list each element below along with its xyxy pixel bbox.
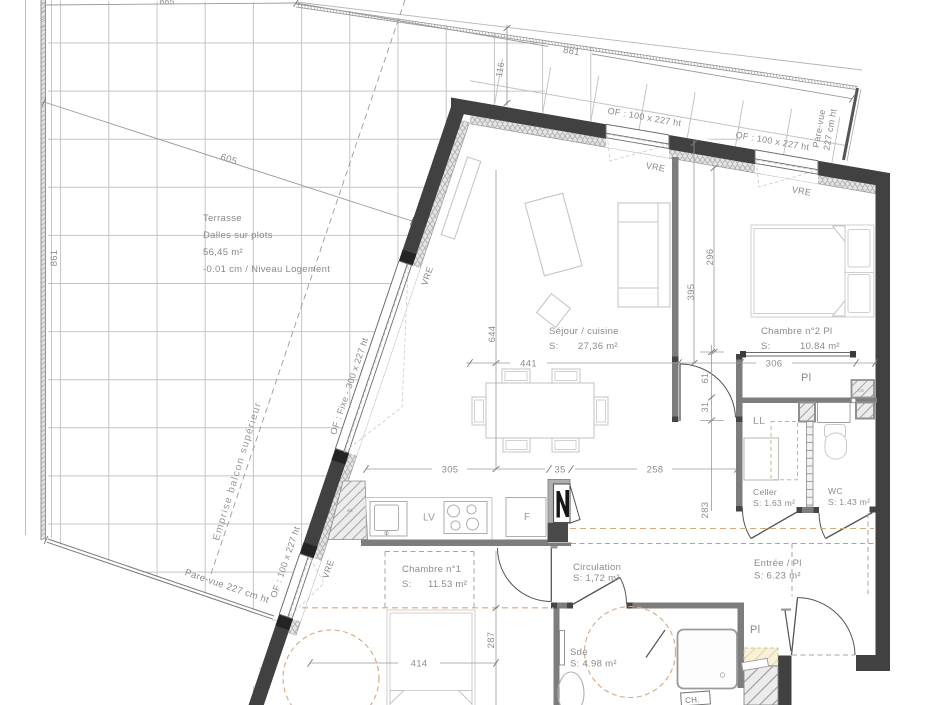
svg-text:S:: S: (549, 341, 559, 352)
svg-text:861: 861 (49, 250, 60, 267)
svg-text:-0.01 cm / Niveau Logement: -0.01 cm / Niveau Logement (203, 264, 330, 275)
svg-text:Circulation: Circulation (573, 562, 621, 573)
svg-text:414: 414 (411, 659, 428, 670)
svg-text:Chambre n°1: Chambre n°1 (402, 564, 461, 575)
svg-text:S: 1,72 m²: S: 1,72 m² (573, 573, 620, 584)
svg-text:296: 296 (705, 249, 716, 266)
svg-text:as: as (347, 508, 353, 514)
svg-text:Chambre n°2 Pl: Chambre n°2 Pl (761, 326, 832, 337)
svg-text:WC: WC (828, 486, 843, 496)
svg-text:Dalles sur plots: Dalles sur plots (203, 230, 273, 241)
svg-text:CH.: CH. (685, 695, 700, 705)
svg-text:Celler: Celler (753, 487, 777, 497)
svg-text:287: 287 (486, 632, 497, 649)
svg-text:283: 283 (700, 502, 711, 519)
svg-text:Entrée / Pl: Entrée / Pl (754, 558, 802, 569)
svg-text:305: 305 (442, 465, 459, 476)
svg-text:Terrasse: Terrasse (203, 213, 242, 224)
svg-text:31: 31 (700, 402, 710, 413)
svg-text:56,45 m²: 56,45 m² (203, 247, 243, 258)
svg-text:S:: S: (761, 341, 771, 352)
svg-text:Sde: Sde (570, 647, 588, 658)
svg-text:395: 395 (686, 284, 697, 301)
svg-text:S: 4.98 m²: S: 4.98 m² (570, 659, 617, 670)
svg-text:S: 1.63 m²: S: 1.63 m² (753, 498, 795, 508)
svg-text:Pl: Pl (750, 624, 760, 636)
svg-text:61: 61 (700, 373, 710, 384)
svg-text:10.84 m²: 10.84 m² (800, 341, 840, 352)
svg-text:885: 885 (159, 0, 174, 6)
svg-text:35: 35 (554, 465, 565, 476)
svg-text:644: 644 (487, 326, 498, 343)
svg-text:LL: LL (753, 415, 765, 427)
svg-text:LV: LV (423, 513, 435, 524)
svg-text:Séjour / cuisine: Séjour / cuisine (549, 326, 619, 337)
svg-text:11.53 m²: 11.53 m² (428, 579, 467, 590)
svg-text:S: 1.43 m²: S: 1.43 m² (828, 497, 870, 507)
svg-text:Pl: Pl (801, 372, 811, 384)
svg-text:306: 306 (766, 359, 783, 370)
svg-text:cs: cs (858, 388, 864, 394)
svg-text:441: 441 (520, 359, 537, 370)
svg-text:27,36 m²: 27,36 m² (578, 341, 618, 352)
svg-text:S:: S: (402, 579, 412, 590)
svg-text:258: 258 (647, 465, 664, 476)
svg-text:F: F (524, 512, 530, 523)
svg-text:S: 6.23 m²: S: 6.23 m² (754, 571, 801, 582)
